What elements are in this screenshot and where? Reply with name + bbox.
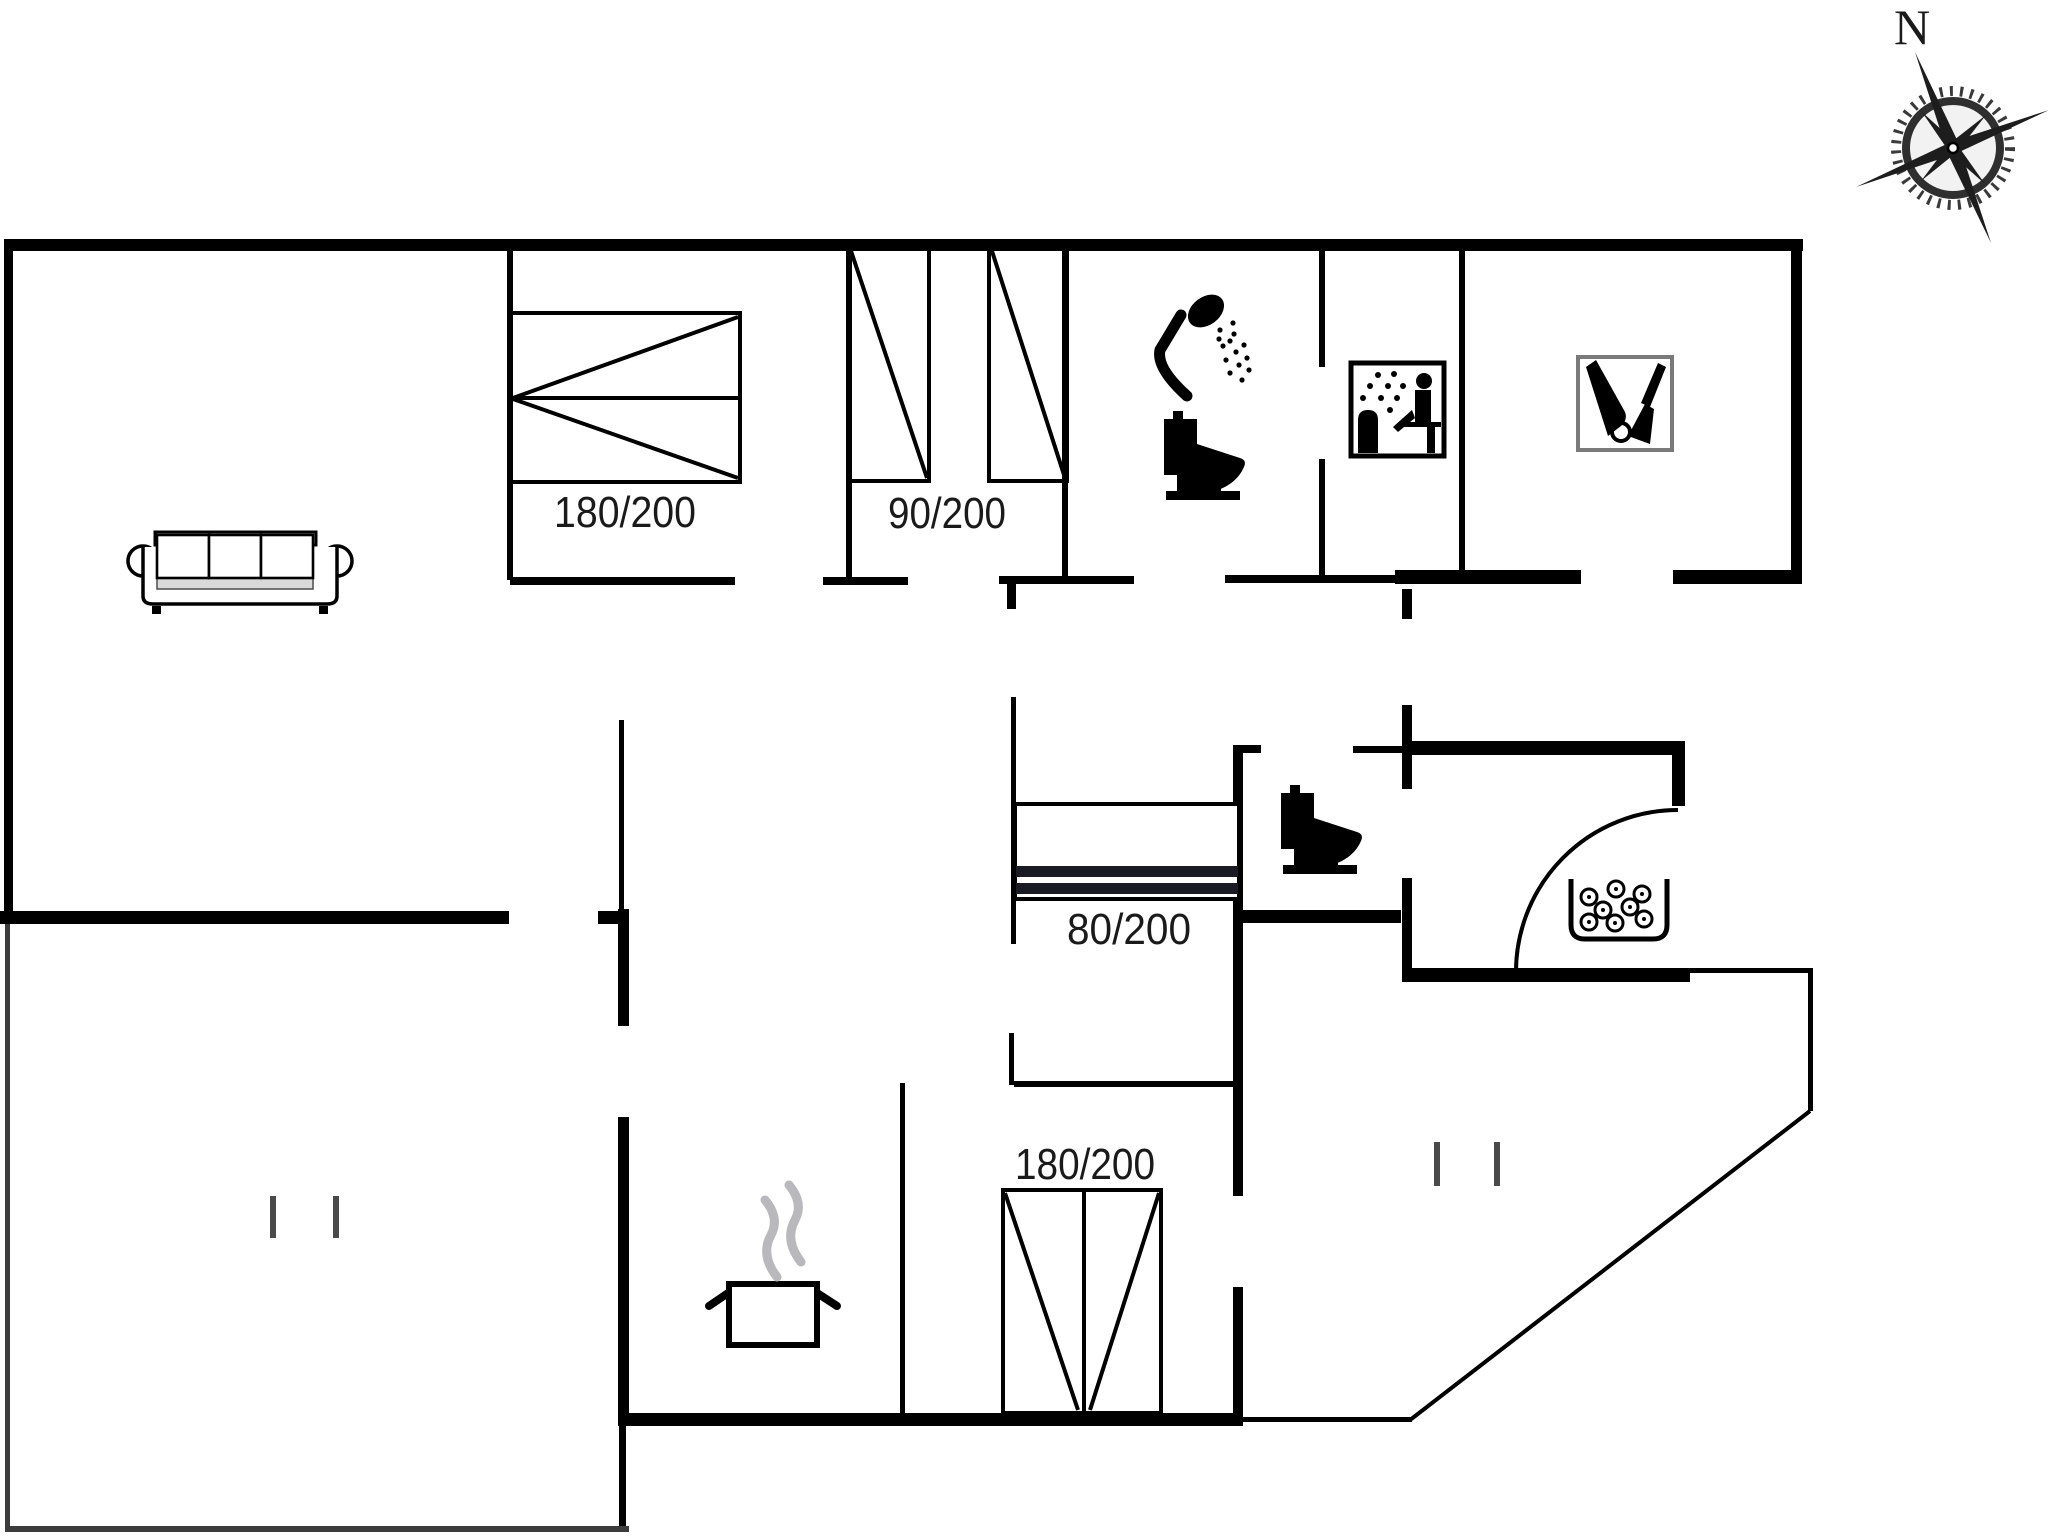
svg-text:80/200: 80/200 [1067, 905, 1191, 954]
svg-text:180/200: 180/200 [554, 488, 696, 537]
svg-text:90/200: 90/200 [888, 489, 1006, 538]
svg-text:180/200: 180/200 [1015, 1140, 1155, 1189]
svg-text:N: N [1894, 0, 1930, 55]
